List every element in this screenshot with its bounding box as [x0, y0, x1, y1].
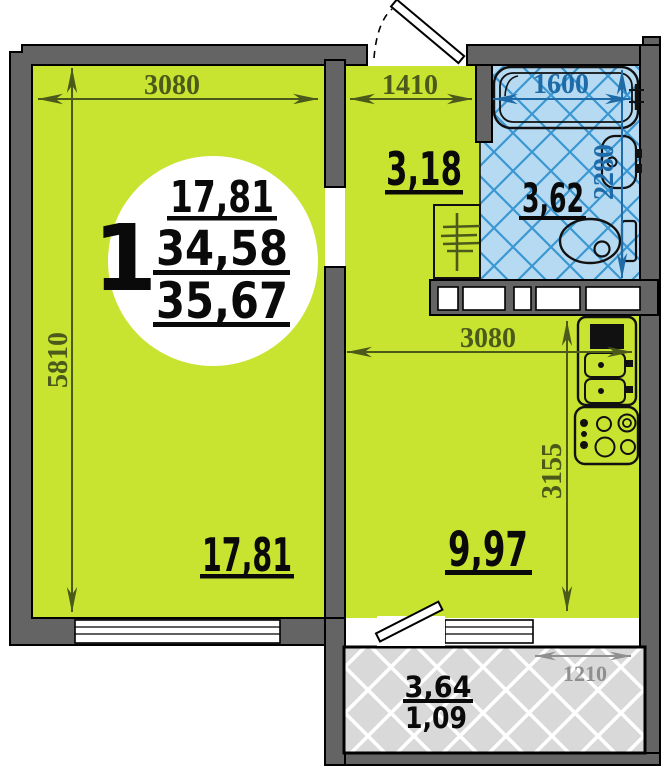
entrance-door	[368, 0, 466, 66]
inner-wall-bottom	[325, 267, 345, 618]
balcony-wall-bottom	[330, 753, 660, 765]
dim-bathroom-width-label: 1600	[533, 69, 589, 100]
vent-box	[514, 287, 531, 310]
circle-area-sub-label: 34,58	[156, 221, 288, 277]
circle-area-total-label: 35,67	[156, 272, 288, 330]
living-area-label: 17,81	[202, 528, 292, 582]
kitchen-area-label: 9,97	[448, 522, 528, 578]
dim-living-width-label: 3080	[144, 70, 200, 101]
bathroom-pier-wall	[476, 65, 492, 142]
outer-wall-top-right	[467, 45, 660, 65]
balcony-wall-left	[325, 618, 345, 765]
riser-box	[434, 205, 480, 278]
balcony-area-label: 3,64	[405, 670, 472, 704]
circle-underline-1	[167, 216, 277, 221]
vent-shaft-openings	[438, 287, 640, 310]
inner-wall-top	[325, 60, 345, 187]
hallway-area-label: 3,18	[386, 142, 462, 196]
vent-box	[586, 287, 640, 310]
living-area-underline	[200, 574, 294, 579]
dim-balcony-width-label: 1210	[563, 661, 607, 686]
dim-kitchen-width-label: 3080	[460, 323, 516, 354]
living-window	[75, 620, 280, 643]
vent-box	[438, 287, 458, 310]
circle-underline-3	[153, 322, 290, 327]
floor-plan-page: 3080 1410 1600 5810 2280 3080 3155 1210	[0, 0, 670, 768]
floor-plan: 3080 1410 1600 5810 2280 3080 3155 1210	[0, 0, 670, 768]
dim-bathroom-depth-label: 2280	[589, 144, 620, 200]
bathroom-area-underline	[519, 216, 586, 220]
dim-living-depth-label: 5810	[43, 332, 74, 388]
dim-kitchen-depth-label: 3155	[537, 443, 568, 499]
circle-living-area-label: 17,81	[170, 172, 274, 223]
balcony-area-coef-label: 1,09	[405, 701, 467, 735]
vent-box	[463, 287, 505, 310]
kitchen-window	[445, 620, 533, 643]
flat-number-label: 1	[93, 205, 157, 312]
dim-hallway-width-label: 1410	[382, 70, 438, 101]
bathroom-area-label: 3,62	[522, 176, 584, 222]
hallway-area-underline	[385, 190, 463, 195]
kitchen-area-underline	[445, 570, 532, 575]
vent-box	[536, 287, 580, 310]
